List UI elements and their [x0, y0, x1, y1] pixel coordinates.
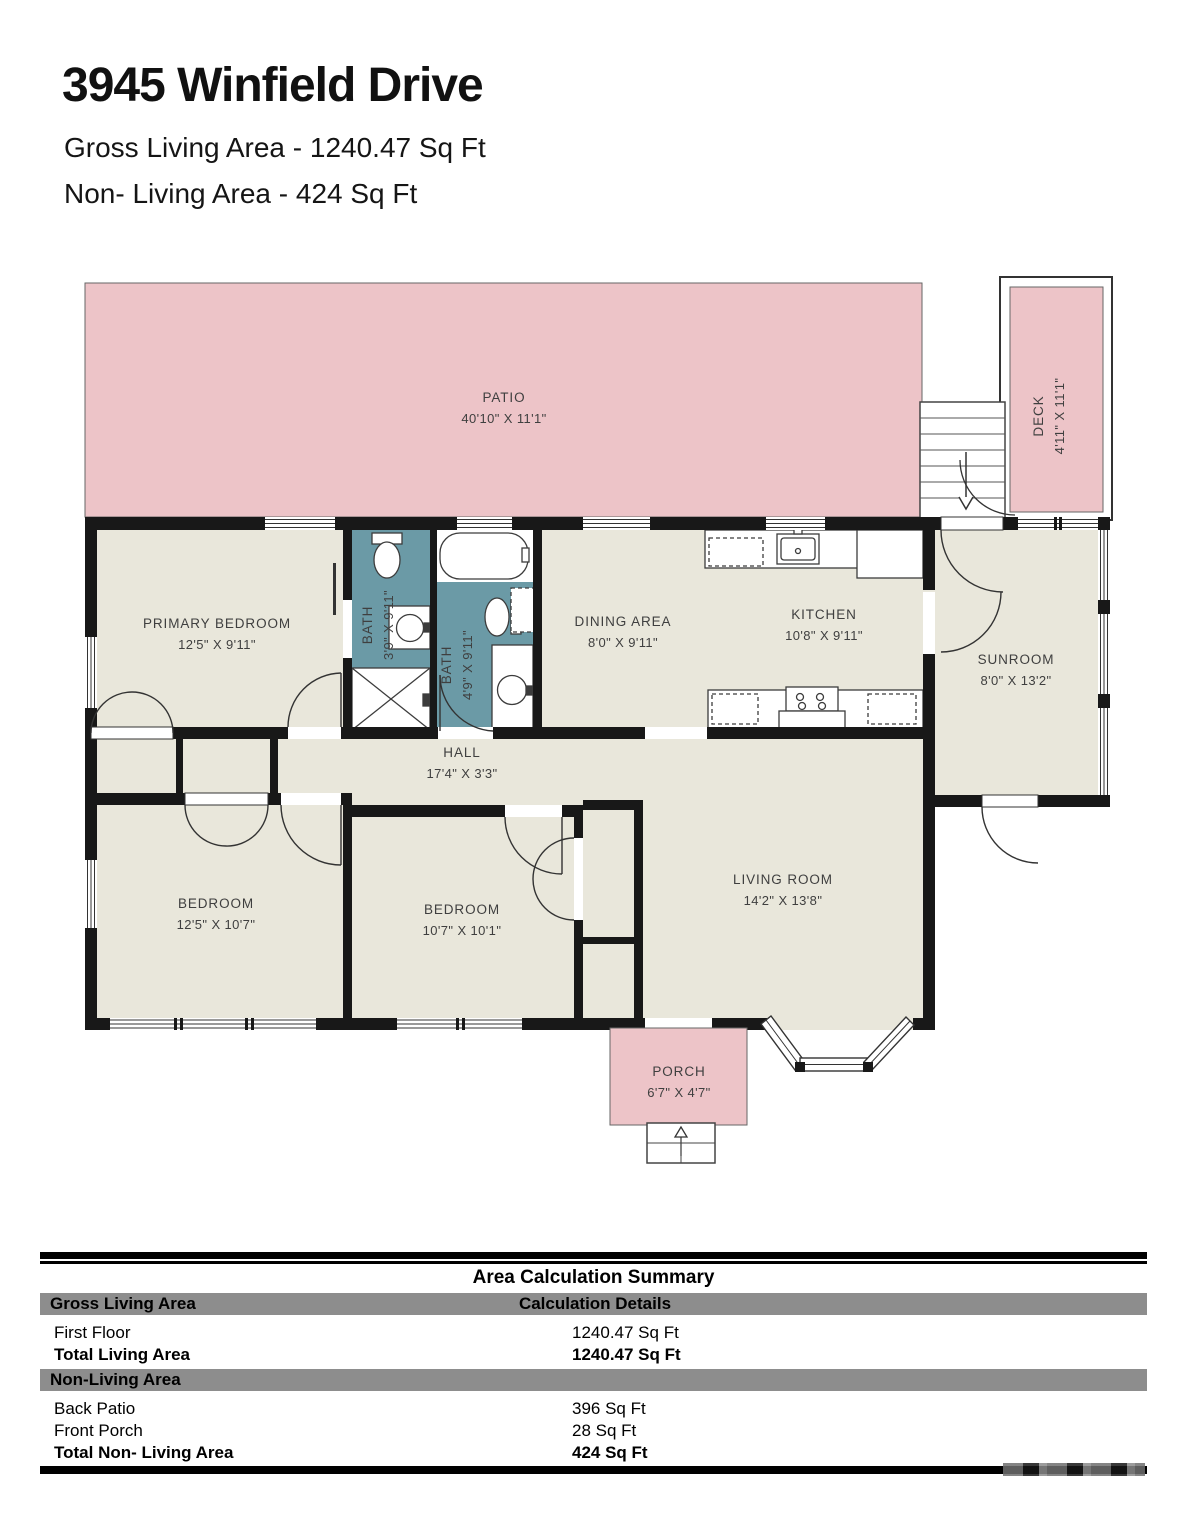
label-living-room: LIVING ROOM 14'2" X 13'8": [733, 869, 833, 911]
front-steps: [647, 1123, 715, 1163]
table-bottom-border: [40, 1466, 1147, 1474]
gross-living-header-row: Gross Living Area Calculation Details: [40, 1293, 1147, 1315]
col2-header: Calculation Details: [505, 1294, 685, 1314]
non-living-header-row: Non-Living Area: [40, 1369, 1147, 1391]
section2-header: Non-Living Area: [50, 1370, 181, 1390]
staircase: [920, 402, 1015, 518]
table-row-total-non-living: Total Non- Living Area 424 Sq Ft: [40, 1441, 1147, 1463]
label-kitchen: KITCHEN 10'8" X 9'11": [785, 604, 863, 646]
label-bedroom2: BEDROOM 10'7" X 10'1": [423, 899, 502, 941]
label-bath1: BATH 3'9" X 9'11": [357, 590, 399, 660]
label-bath2: BATH 4'9" X 9'11": [436, 630, 478, 700]
table-title: Area Calculation Summary: [40, 1261, 1147, 1293]
label-hall: HALL 17'4" X 3'3": [426, 742, 497, 784]
label-bedroom1: BEDROOM 12'5" X 10'7": [177, 893, 256, 935]
floorplan-page: 3945 Winfield Drive Gross Living Area - …: [0, 0, 1187, 1536]
label-dining: DINING AREA 8'0" X 9'11": [575, 611, 672, 653]
label-deck: DECK 4'11" X 11'1": [1028, 378, 1070, 455]
table-row-front-porch: Front Porch 28 Sq Ft: [40, 1419, 1147, 1441]
label-porch: PORCH 6'7" X 4'7": [647, 1061, 710, 1103]
table-row-total-living: Total Living Area 1240.47 Sq Ft: [40, 1343, 1147, 1365]
watermark-logo: [1003, 1463, 1145, 1476]
house-floor: [85, 517, 1110, 1030]
label-patio: PATIO 40'10" X 11'1": [461, 387, 546, 429]
table-top-border: [40, 1252, 1147, 1261]
col1-header: Gross Living Area: [50, 1294, 196, 1314]
label-primary-bedroom: PRIMARY BEDROOM 12'5" X 9'11": [143, 613, 291, 655]
table-row-first-floor: First Floor 1240.47 Sq Ft: [40, 1321, 1147, 1343]
area-calculation-summary: Area Calculation Summary Gross Living Ar…: [40, 1252, 1147, 1474]
table-row-back-patio: Back Patio 396 Sq Ft: [40, 1397, 1147, 1419]
label-sunroom: SUNROOM 8'0" X 13'2": [978, 649, 1055, 691]
